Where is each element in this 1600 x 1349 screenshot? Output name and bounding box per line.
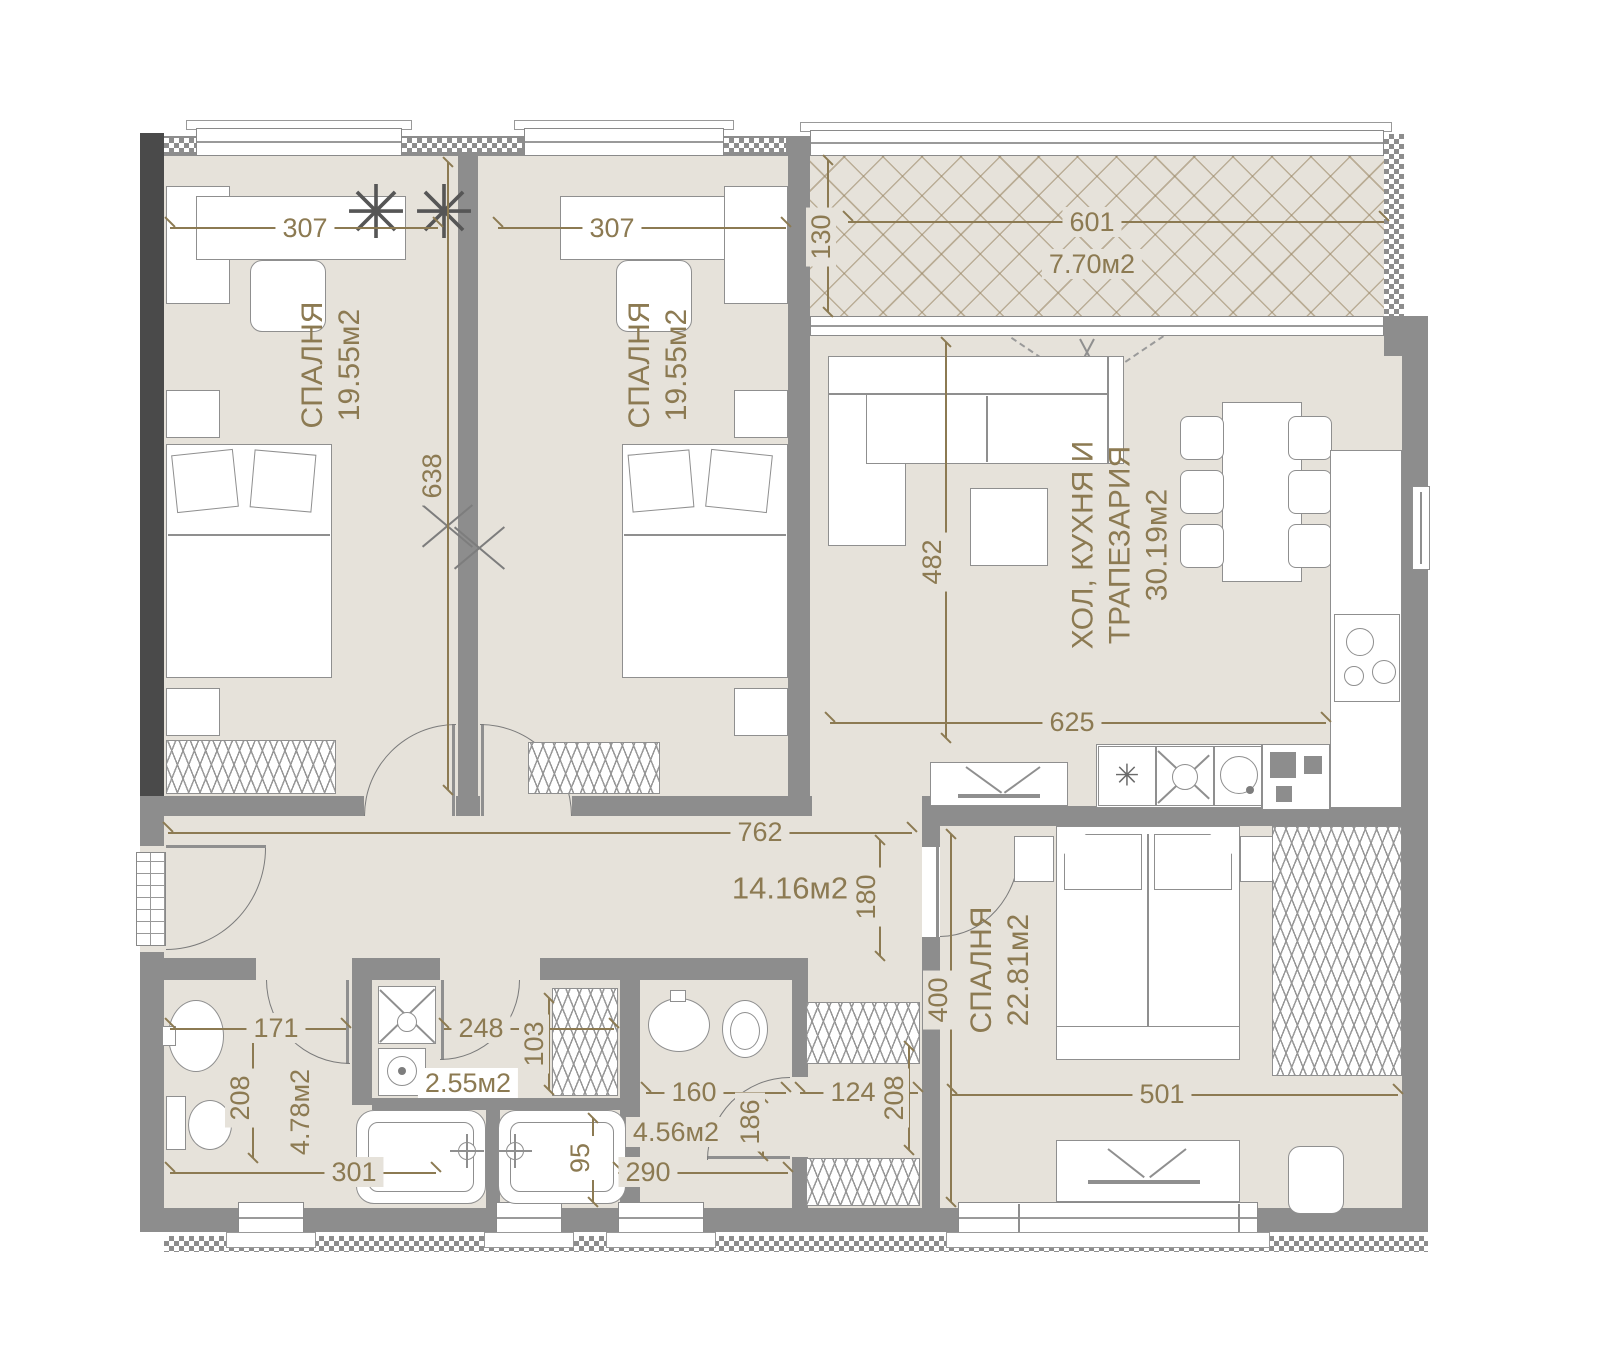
laundry-wardrobe — [552, 988, 618, 1096]
bath1-sink — [168, 1000, 224, 1072]
dim-bath2-width: 160 — [664, 1077, 723, 1107]
window-sill-bath1 — [226, 1232, 316, 1248]
screen-top-a — [164, 138, 198, 152]
bathroom2-area-label: 4.56м2 — [626, 1117, 726, 1147]
bedroom1-pillow-left — [171, 449, 239, 513]
bathtub-1-inner — [368, 1122, 474, 1192]
window-balcony-inner — [810, 316, 1384, 336]
dim-bedroom2-width: 307 — [582, 213, 641, 243]
dim-corridor-depth: 180 — [851, 867, 881, 926]
bedroom3-wardrobe — [1272, 826, 1402, 1076]
screen-top-c — [724, 138, 786, 152]
wall-corridor-bottom-a — [164, 958, 256, 980]
bedroom3-chair — [1288, 1146, 1344, 1214]
living-name-line2: ТРАПЕЗАРИЯ — [1102, 441, 1139, 649]
bath2-tap — [670, 990, 686, 1002]
bedroom3-bed-foot — [1056, 1026, 1240, 1060]
window-bedroom2 — [524, 128, 724, 156]
bedroom2-label: СПАЛНЯ 19.55м2 — [621, 302, 695, 429]
window-entrance-brick — [136, 852, 166, 946]
window-bedroom3-mullion1 — [1018, 1204, 1020, 1232]
wall-living-bed3 — [940, 806, 1402, 826]
bedroom2-pillow-left — [628, 449, 695, 512]
laundry-area-label: 2.55м2 — [418, 1068, 518, 1098]
bedroom2-name: СПАЛНЯ — [621, 302, 658, 429]
window-bath1 — [238, 1202, 304, 1234]
sofa-back — [828, 356, 1108, 394]
dimline-bath1-total — [170, 1172, 436, 1174]
dining-chair — [1180, 416, 1224, 460]
bedroom3-bed-split — [1147, 834, 1149, 1026]
window-sill-bath2 — [606, 1232, 716, 1248]
bedroom1-name: СПАЛНЯ — [294, 302, 331, 429]
dim-corridor-width: 762 — [730, 817, 789, 847]
wall-right — [1402, 316, 1428, 1232]
bathroom1-area-label: 4.78м2 — [285, 1062, 315, 1162]
dim-laundry-depth: 103 — [519, 1014, 549, 1073]
stove — [1334, 614, 1400, 702]
bedroom1-pillow-right — [250, 449, 317, 512]
dim-living-depth: 482 — [917, 532, 947, 591]
dim-bedroom1-width: 307 — [275, 213, 334, 243]
window-bedroom3 — [958, 1202, 1258, 1234]
living-name-line1: ХОЛ, КУХНЯ И — [1065, 441, 1102, 649]
wall-balcony-right-screen — [1384, 134, 1404, 316]
bathtub-1-faucet-v — [466, 1134, 468, 1168]
corridor-label: 14.16м2 — [732, 870, 848, 907]
dim-bedrooms-depth: 638 — [417, 446, 447, 505]
bedroom1-blanket-line — [168, 534, 330, 536]
dining-chair — [1180, 524, 1224, 568]
sink-drain — [1246, 786, 1254, 794]
bedroom3-area: 22.81м2 — [1000, 907, 1037, 1034]
fridge-symbol — [1276, 786, 1292, 802]
bedroom2-shelf — [724, 186, 788, 304]
sofa-seat-split — [986, 396, 988, 462]
section-x-mark — [452, 520, 506, 574]
corridor-area: 14.16м2 — [732, 870, 848, 907]
dim-living-width: 625 — [1042, 707, 1101, 737]
fridge-symbol — [1270, 752, 1296, 778]
bedroom2-pillow-right — [705, 449, 773, 513]
plant-icon: ✳ — [413, 176, 475, 250]
window-laundry — [496, 1202, 562, 1234]
washing-machine-dot — [398, 1067, 406, 1075]
bedroom1-wardrobe — [166, 740, 336, 794]
dim-balcony-width: 601 — [1062, 207, 1121, 237]
wall-corridor-top-c — [572, 796, 812, 816]
window-balcony-glazing — [810, 130, 1384, 156]
bedroom1-label: СПАЛНЯ 19.55м2 — [294, 302, 368, 429]
dim-bedroom3-width: 501 — [1132, 1079, 1191, 1109]
laundry-sink-bowl — [397, 1012, 417, 1032]
wall-left-dark — [140, 133, 164, 796]
floor-plan: ✳ ✳ ✳ — [0, 0, 1600, 1349]
dim-tub-depth: 95 — [565, 1136, 595, 1180]
plant-icon: ✳ — [345, 176, 407, 250]
dim-laundry-width: 248 — [451, 1013, 510, 1043]
dim-bedroom3-depth: 400 — [923, 970, 953, 1029]
bathtub-2-faucet-v — [514, 1134, 516, 1168]
living-area: 30.19м2 — [1139, 441, 1176, 649]
dim-hall-width: 124 — [823, 1077, 882, 1107]
kitchen-sink-tap — [1172, 764, 1198, 790]
tv-living — [958, 794, 1040, 798]
wall-bath1-laundry — [352, 980, 372, 1105]
wall-balcony-corner — [1384, 316, 1428, 356]
wall-corridor-top-b — [456, 796, 480, 816]
bedroom2-blanket-line — [624, 534, 786, 536]
wall-corridor-bottom-c — [540, 958, 792, 980]
wall-corridor-top-a — [164, 796, 364, 816]
dim-bath2-depth: 186 — [735, 1092, 765, 1151]
dim-bath1-width: 171 — [246, 1013, 305, 1043]
bedroom3-nightstand-left — [1014, 836, 1054, 882]
hall-wardrobe-bottom — [806, 1158, 920, 1206]
bath1-toilet-cistern — [166, 1096, 186, 1150]
dim-bath2-bottom: 290 — [618, 1157, 677, 1187]
bath2-sink — [648, 998, 710, 1052]
bedroom3-tv-bench — [1056, 1140, 1240, 1202]
bedroom3-name: СПАЛНЯ — [963, 907, 1000, 1034]
dim-bath1-depth: 208 — [225, 1068, 255, 1127]
dining-chair — [1288, 416, 1332, 460]
window-sill-laundry — [484, 1232, 574, 1248]
wall-corridor-bottom-b — [352, 958, 440, 980]
dining-chair — [1288, 524, 1332, 568]
living-label: ХОЛ, КУХНЯ И ТРАПЕЗАРИЯ 30.19м2 — [1065, 441, 1176, 649]
tv-bench-living — [930, 762, 1068, 806]
dimline-bed2-width — [498, 227, 786, 229]
window-bath2 — [618, 1202, 704, 1234]
bedroom1-nightstand-b — [166, 688, 220, 736]
bedroom2-wardrobe — [528, 742, 660, 794]
dim-bath1-total: 301 — [324, 1157, 383, 1187]
dimline-corridor-width — [168, 832, 912, 834]
stove-burner — [1372, 660, 1396, 684]
hall-wardrobe-top — [806, 1002, 920, 1064]
balcony-area-label: 7.70м2 — [1042, 249, 1142, 279]
screen-top-b — [402, 138, 522, 152]
coffee-table — [970, 488, 1048, 566]
window-bedroom1 — [196, 128, 402, 156]
bedroom2-nightstand-a — [734, 390, 788, 438]
bedroom3-door-leaf — [936, 847, 939, 937]
dishwasher-icon: ✳ — [1114, 759, 1139, 794]
dining-chair — [1288, 470, 1332, 514]
dimline-beds-depth — [447, 162, 449, 790]
dim-balcony-depth: 130 — [806, 207, 836, 266]
window-bedroom3-mullion2 — [1238, 1204, 1240, 1232]
bedroom3-tv — [1088, 1180, 1200, 1184]
dim-hall-depth: 208 — [879, 1068, 909, 1127]
bedroom3-label: СПАЛНЯ 22.81м2 — [963, 907, 1037, 1034]
bedroom1-area: 19.55м2 — [331, 302, 368, 429]
bath2-toilet-inner — [730, 1012, 760, 1050]
dining-chair — [1180, 470, 1224, 514]
stove-burner — [1346, 628, 1374, 656]
bedroom2-area: 19.55м2 — [658, 302, 695, 429]
stove-burner — [1344, 666, 1364, 686]
fridge-symbol — [1304, 756, 1322, 774]
radiator-line — [1420, 492, 1422, 564]
bedroom1-nightstand-a — [166, 390, 220, 438]
bathtub-2-inner — [510, 1122, 614, 1192]
window-sill-bedroom3 — [946, 1232, 1270, 1248]
bedroom2-nightstand-b — [734, 688, 788, 736]
